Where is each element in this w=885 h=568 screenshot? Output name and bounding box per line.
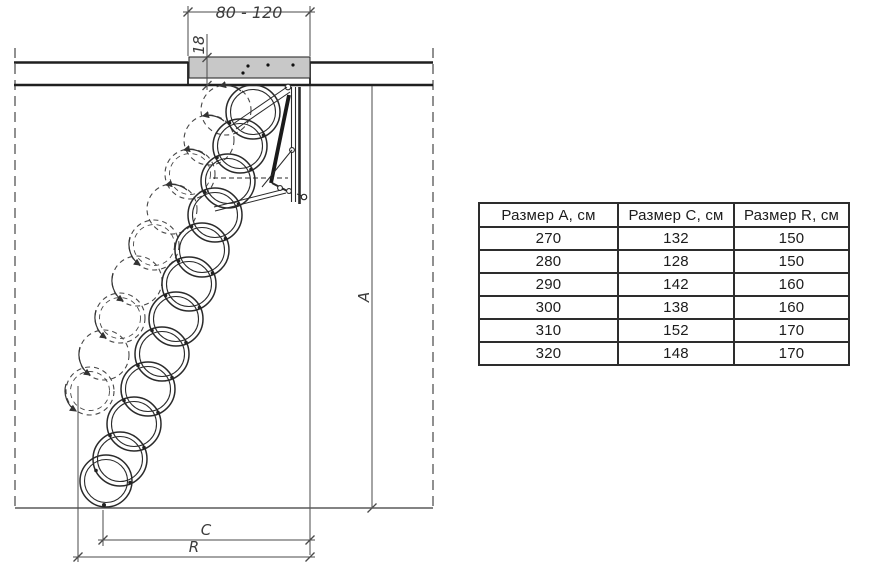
ladder-ring xyxy=(201,154,255,208)
size-cell: 160 xyxy=(734,296,849,319)
size-cell: 270 xyxy=(479,227,618,250)
top-hinge xyxy=(285,84,291,90)
clearance-r-label: R xyxy=(189,538,199,556)
size-cell: 148 xyxy=(618,342,734,365)
ladder-diagram: 80 - 120 18 A C xyxy=(0,0,460,568)
size-cell: 160 xyxy=(734,273,849,296)
dimension-height-a: A xyxy=(355,86,377,513)
table-row: 300 138 160 xyxy=(479,296,849,319)
size-cell: 290 xyxy=(479,273,618,296)
release-knob xyxy=(301,194,306,199)
table-header-row: Размер А, см Размер С, см Размер R, см xyxy=(479,203,849,227)
ladder-ring xyxy=(226,85,280,139)
size-cell: 150 xyxy=(734,227,849,250)
hatch-thickness-label: 18 xyxy=(190,35,208,54)
ladder-ring xyxy=(135,327,189,381)
size-cell: 170 xyxy=(734,319,849,342)
ladder-ring xyxy=(107,397,161,451)
table-row: 310 152 170 xyxy=(479,319,849,342)
projection-c-label: C xyxy=(201,521,212,539)
col-header-size-r: Размер R, см xyxy=(734,203,849,227)
col-header-size-c: Размер С, см xyxy=(618,203,734,227)
dimension-projection-c: C xyxy=(98,510,315,546)
ladder-ring xyxy=(188,188,242,242)
size-cell: 150 xyxy=(734,250,849,273)
ladder-solid-chain xyxy=(80,85,280,507)
size-cell: 310 xyxy=(479,319,618,342)
size-cell: 152 xyxy=(618,319,734,342)
size-cell: 132 xyxy=(618,227,734,250)
pivot-bolts xyxy=(94,121,265,507)
table-row: 290 142 160 xyxy=(479,273,849,296)
table-row: 320 148 170 xyxy=(479,342,849,365)
ladder-ring xyxy=(175,223,229,277)
size-cell: 128 xyxy=(618,250,734,273)
size-cell: 300 xyxy=(479,296,618,319)
size-cell: 142 xyxy=(618,273,734,296)
ladder-ring xyxy=(213,119,267,173)
size-cell: 280 xyxy=(479,250,618,273)
col-header-size-a: Размер А, см xyxy=(479,203,618,227)
ladder-ring xyxy=(162,257,216,311)
ladder-ring xyxy=(149,292,203,346)
page: 80 - 120 18 A C xyxy=(0,0,885,568)
table-row: 270 132 150 xyxy=(479,227,849,250)
ladder-ring xyxy=(121,362,175,416)
size-table: Размер А, см Размер С, см Размер R, см 2… xyxy=(478,202,850,366)
ladder-ghost-chain xyxy=(66,85,251,415)
height-a-label: A xyxy=(355,292,373,303)
opening-width-label: 80 - 120 xyxy=(216,3,283,22)
size-cell: 170 xyxy=(734,342,849,365)
ghost-ring xyxy=(66,367,114,415)
size-cell: 320 xyxy=(479,342,618,365)
table-row: 280 128 150 xyxy=(479,250,849,273)
size-cell: 138 xyxy=(618,296,734,319)
